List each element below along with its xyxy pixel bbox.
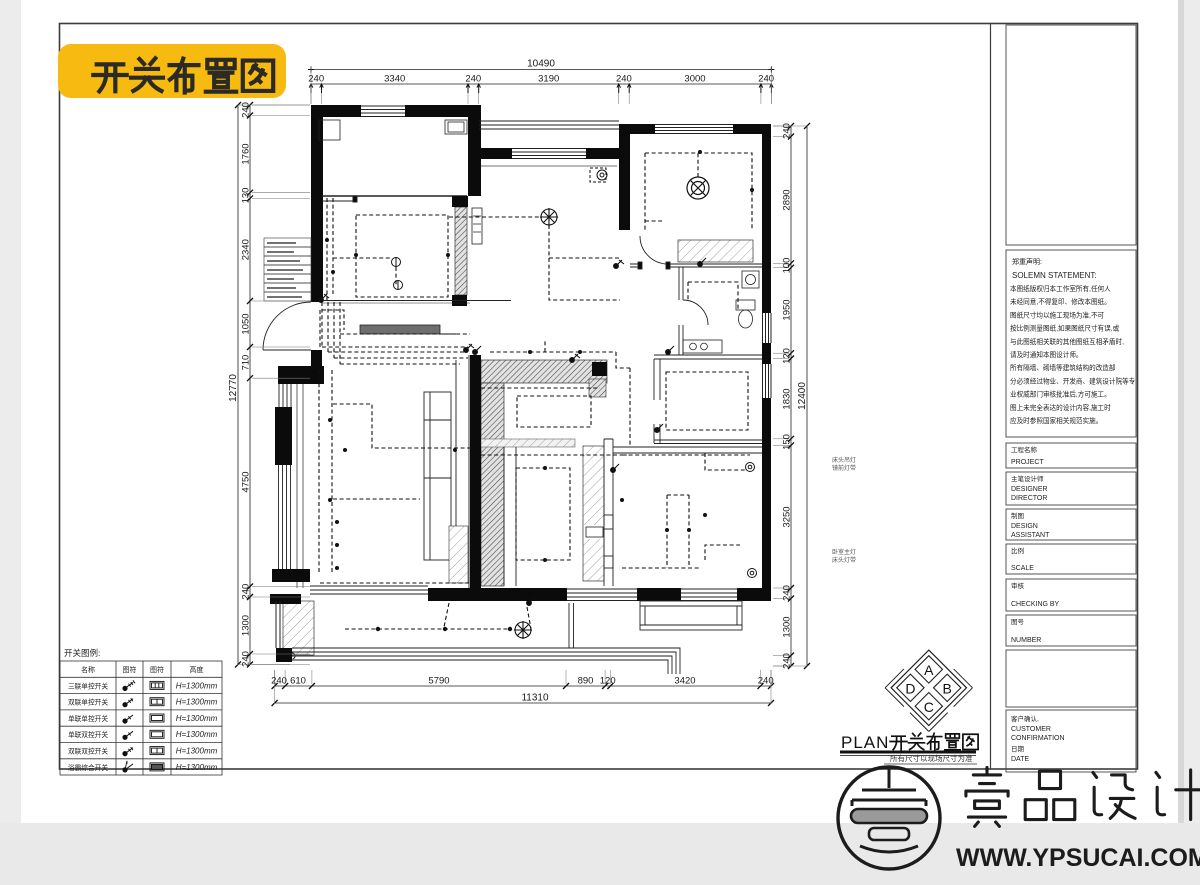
- svg-text:工程名称: 工程名称: [1011, 445, 1038, 454]
- svg-text:SOLEMN STATEMENT:: SOLEMN STATEMENT:: [1012, 271, 1097, 280]
- svg-text:请及时通知本图设计师。: 请及时通知本图设计师。: [1010, 350, 1083, 359]
- svg-text:2890: 2890: [782, 189, 793, 210]
- svg-text:H=1300mm: H=1300mm: [176, 698, 218, 707]
- svg-text:DATE: DATE: [1011, 756, 1029, 763]
- svg-text:双联双控开关: 双联双控开关: [68, 747, 108, 756]
- svg-text:240: 240: [758, 676, 774, 687]
- svg-text:H=1300mm: H=1300mm: [176, 730, 218, 739]
- svg-text:240: 240: [241, 584, 252, 600]
- svg-text:本图纸版权归本工作室所有,任何人: 本图纸版权归本工作室所有,任何人: [1010, 284, 1111, 293]
- svg-text:镜前灯带: 镜前灯带: [832, 464, 856, 472]
- svg-text:D: D: [905, 680, 915, 696]
- svg-text:1760: 1760: [241, 143, 252, 164]
- svg-text:ASSISTANT: ASSISTANT: [1011, 532, 1050, 539]
- svg-text:3190: 3190: [538, 74, 559, 85]
- svg-text:H=1300mm: H=1300mm: [176, 681, 218, 690]
- svg-text:DESIGN: DESIGN: [1011, 523, 1038, 530]
- svg-text:主笔设计师: 主笔设计师: [1011, 474, 1044, 483]
- svg-text:H=1300mm: H=1300mm: [176, 714, 218, 723]
- svg-text:H=1300mm: H=1300mm: [176, 747, 218, 756]
- svg-text:图符: 图符: [123, 665, 137, 674]
- svg-text:按比例测量图纸,如果图纸尺寸有误,或: 按比例测量图纸,如果图纸尺寸有误,或: [1010, 324, 1120, 333]
- svg-text:240: 240: [308, 74, 324, 85]
- svg-text:240: 240: [241, 102, 252, 118]
- svg-text:床头吊灯: 床头吊灯: [832, 456, 856, 464]
- svg-text:制图: 制图: [1011, 511, 1024, 520]
- svg-text:4750: 4750: [241, 471, 252, 492]
- svg-text:120: 120: [782, 348, 793, 364]
- svg-text:3250: 3250: [782, 506, 793, 527]
- svg-text:890: 890: [578, 676, 594, 687]
- svg-text:单联单控开关: 单联单控开关: [68, 714, 108, 723]
- svg-text:240: 240: [782, 653, 793, 669]
- svg-text:100: 100: [782, 258, 793, 274]
- svg-text:WWW.YPSUCAI.COM: WWW.YPSUCAI.COM: [956, 844, 1200, 872]
- svg-text:710: 710: [241, 355, 252, 371]
- svg-text:3340: 3340: [384, 74, 405, 85]
- svg-text:150: 150: [782, 434, 793, 450]
- svg-text:3000: 3000: [684, 74, 705, 85]
- svg-text:130: 130: [241, 188, 252, 204]
- svg-text:NUMBER: NUMBER: [1011, 637, 1041, 644]
- svg-text:所有尺寸以现场尺寸为准: 所有尺寸以现场尺寸为准: [890, 753, 973, 763]
- svg-text:B: B: [943, 680, 952, 696]
- svg-text:3420: 3420: [674, 676, 695, 687]
- svg-text:日期: 日期: [1011, 745, 1025, 753]
- svg-text:未经同意,不得复印、修改本图纸。: 未经同意,不得复印、修改本图纸。: [1010, 297, 1111, 306]
- svg-text:所有隔墙、砌墙等建筑结构的改造部: 所有隔墙、砌墙等建筑结构的改造部: [1010, 363, 1116, 372]
- svg-text:SCALE: SCALE: [1011, 565, 1034, 572]
- svg-text:业权威部门审核批准后,方可施工。: 业权威部门审核批准后,方可施工。: [1010, 390, 1111, 399]
- svg-text:图符: 图符: [150, 665, 164, 674]
- svg-text:浴霸综合开关: 浴霸综合开关: [68, 763, 108, 772]
- svg-text:610: 610: [290, 676, 306, 687]
- svg-text:PROJECT: PROJECT: [1011, 459, 1044, 466]
- svg-text:240: 240: [241, 651, 252, 667]
- svg-text:郑重声明:: 郑重声明:: [1012, 257, 1042, 266]
- svg-text:开关图例:: 开关图例:: [64, 648, 100, 658]
- svg-text:240: 240: [782, 123, 793, 139]
- svg-text:三联单控开关: 三联单控开关: [68, 681, 108, 690]
- svg-text:比例: 比例: [1011, 546, 1024, 555]
- svg-text:11310: 11310: [521, 693, 549, 704]
- svg-text:图上未完全表达的设计内容,施工时: 图上未完全表达的设计内容,施工时: [1010, 403, 1111, 412]
- svg-text:DIRECTOR: DIRECTOR: [1011, 495, 1047, 502]
- svg-text:CONFIRMATION: CONFIRMATION: [1011, 735, 1065, 742]
- svg-text:名称: 名称: [81, 665, 95, 674]
- svg-text:240: 240: [465, 74, 481, 85]
- svg-text:10490: 10490: [527, 59, 555, 70]
- svg-text:5790: 5790: [428, 676, 449, 687]
- svg-text:CUSTOMER: CUSTOMER: [1011, 726, 1051, 733]
- svg-text:双联单控开关: 双联单控开关: [68, 698, 108, 707]
- svg-text:240: 240: [271, 676, 287, 687]
- svg-text:CHECKING BY: CHECKING BY: [1011, 601, 1060, 608]
- svg-text:12400: 12400: [797, 382, 808, 410]
- svg-text:应及时参照国家相关规范实施。: 应及时参照国家相关规范实施。: [1010, 416, 1102, 425]
- svg-text:图纸尺寸均以施工现场为准,不可: 图纸尺寸均以施工现场为准,不可: [1010, 310, 1105, 319]
- svg-text:单联双控开关: 单联双控开关: [68, 730, 108, 739]
- svg-text:高度: 高度: [190, 665, 204, 674]
- svg-text:A: A: [924, 662, 934, 678]
- svg-text:床头灯带: 床头灯带: [832, 556, 856, 564]
- svg-text:1830: 1830: [782, 388, 793, 409]
- svg-text:DESIGNER: DESIGNER: [1011, 486, 1048, 493]
- svg-text:PLAN: PLAN: [841, 733, 889, 752]
- svg-text:12770: 12770: [228, 374, 239, 402]
- svg-text:2340: 2340: [241, 239, 252, 260]
- svg-text:客户确认,: 客户确认,: [1011, 714, 1039, 723]
- svg-text:图号: 图号: [1011, 618, 1025, 626]
- svg-text:与此图纸相关联的其他图纸互相矛盾时,: 与此图纸相关联的其他图纸互相矛盾时,: [1010, 337, 1124, 346]
- svg-text:1300: 1300: [782, 616, 793, 637]
- svg-text:240: 240: [616, 74, 632, 85]
- svg-text:240: 240: [782, 585, 793, 601]
- svg-text:240: 240: [758, 74, 774, 85]
- svg-text:H=1300mm: H=1300mm: [176, 763, 218, 772]
- svg-text:C: C: [924, 699, 934, 715]
- svg-text:1050: 1050: [241, 313, 252, 334]
- svg-text:1300: 1300: [241, 615, 252, 636]
- svg-text:卧室主灯: 卧室主灯: [832, 548, 856, 556]
- svg-text:1950: 1950: [782, 299, 793, 320]
- svg-text:120: 120: [600, 676, 616, 687]
- svg-text:审核: 审核: [1011, 581, 1025, 590]
- svg-text:分必须经过物业、开发商、建筑设计院等专: 分必须经过物业、开发商、建筑设计院等专: [1010, 376, 1136, 385]
